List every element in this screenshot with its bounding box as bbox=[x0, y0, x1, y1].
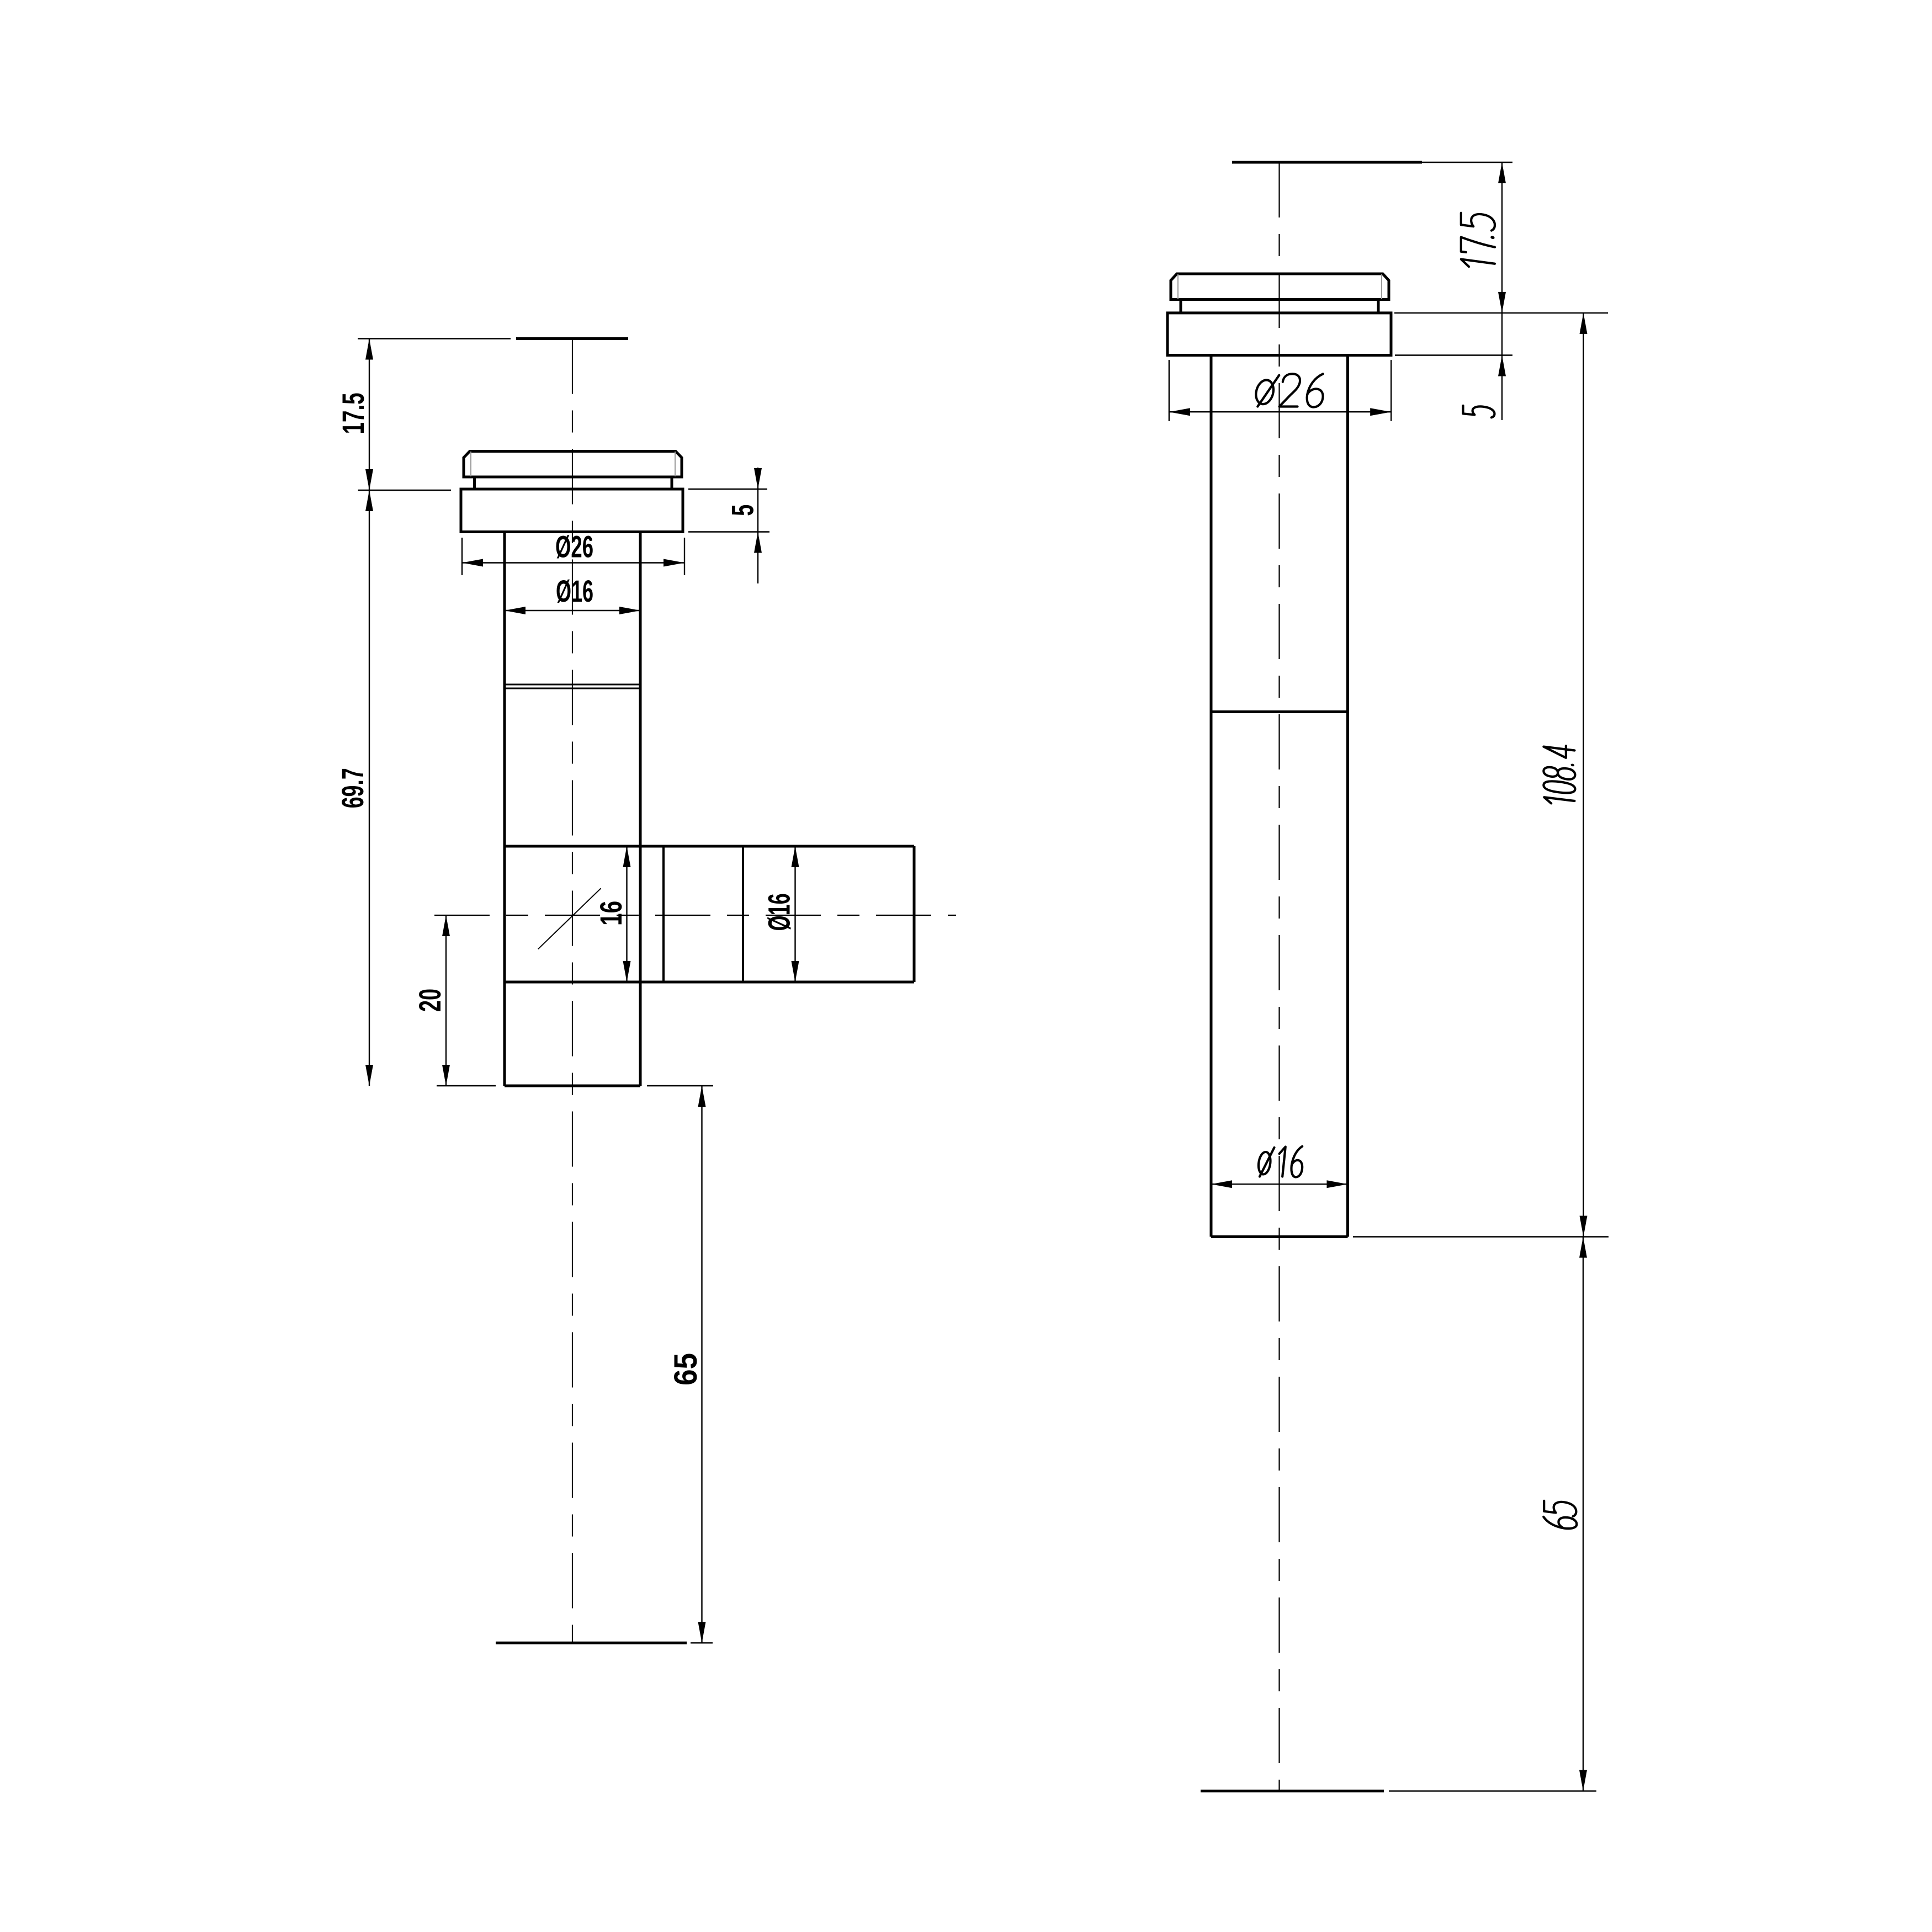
svg-text:Ø16: Ø16 bbox=[556, 574, 593, 608]
svg-text:Ø16: Ø16 bbox=[762, 893, 797, 931]
svg-text:Ø26: Ø26 bbox=[555, 529, 593, 564]
svg-text:16: 16 bbox=[593, 901, 628, 926]
svg-text:20: 20 bbox=[412, 989, 447, 1012]
svg-text:69.7: 69.7 bbox=[335, 768, 370, 808]
svg-text:65: 65 bbox=[668, 1353, 704, 1386]
svg-text:17.5: 17.5 bbox=[336, 392, 370, 434]
svg-text:5: 5 bbox=[725, 505, 760, 516]
